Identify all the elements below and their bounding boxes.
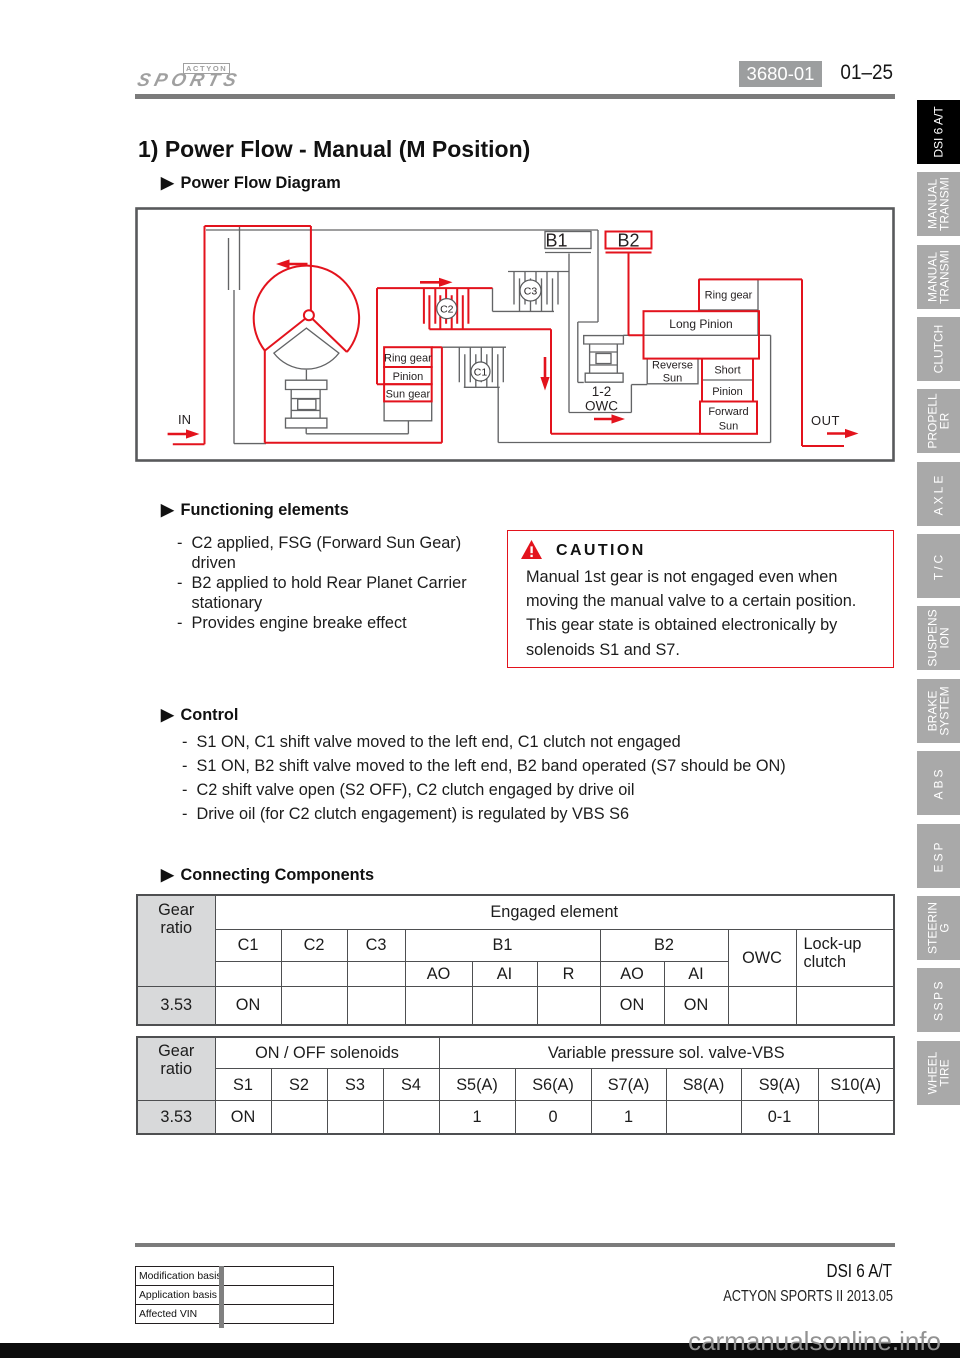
svg-text:IN: IN [178, 412, 191, 427]
svg-text:Reverse: Reverse [652, 360, 693, 372]
svg-text:OUT: OUT [811, 413, 840, 428]
svg-text:C2: C2 [440, 303, 454, 315]
svg-text:Ring gear: Ring gear [705, 290, 753, 302]
svg-text:B2: B2 [617, 231, 639, 251]
svg-text:OWC: OWC [585, 399, 618, 414]
svg-text:Long Pinion: Long Pinion [669, 317, 732, 331]
svg-text:Ring gear: Ring gear [384, 353, 432, 365]
svg-text:Pinion: Pinion [712, 386, 743, 398]
svg-text:Short: Short [714, 365, 740, 377]
svg-text:Sun: Sun [663, 373, 683, 385]
svg-text:C1: C1 [474, 366, 488, 378]
svg-text:C3: C3 [524, 285, 538, 297]
svg-text:Pinion: Pinion [393, 371, 424, 383]
svg-text:Forward: Forward [708, 406, 748, 418]
svg-text:1-2: 1-2 [592, 384, 612, 399]
svg-text:B1: B1 [545, 231, 567, 251]
svg-text:Sun gear: Sun gear [386, 389, 431, 401]
svg-text:Sun: Sun [719, 421, 739, 433]
